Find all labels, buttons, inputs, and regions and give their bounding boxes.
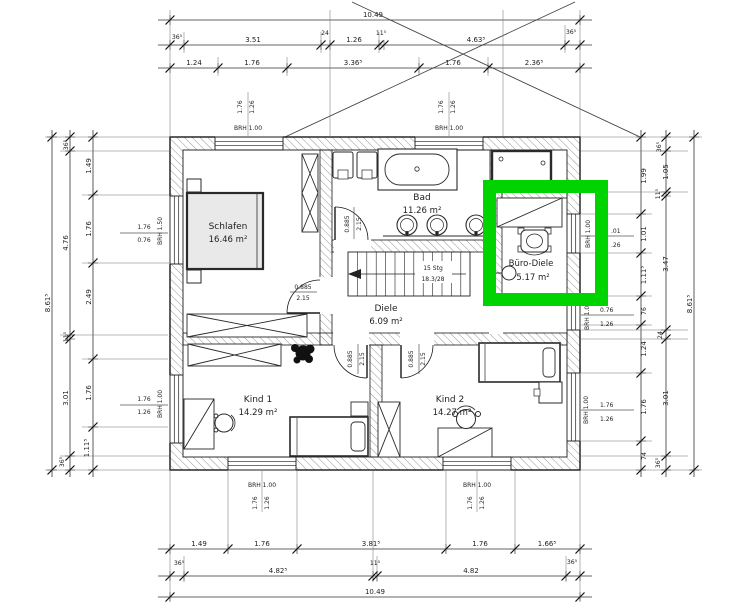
wardrobe [378,402,400,457]
roof-line [285,2,575,137]
label-rooms-0-area: 16.46 m² [209,235,248,245]
label-dims-bottom-chain2-3: 4.82 [463,567,479,575]
label-door-h: 2.15 [359,352,366,366]
label-dims-left-chain3-3: 1.76 [85,385,93,401]
label-windows-left2-w: 1.76 [137,396,151,403]
label-dims-top-chain3-1: 1.76 [244,59,260,67]
toilet [333,152,353,179]
label-dims-bottom-chain2-2: 11⁵ [370,560,381,567]
label-dims-left-chain3-1: 1.76 [85,221,93,237]
window [443,456,511,471]
label-windows-top1-brh: BRH 1.00 [234,125,262,132]
desk [438,428,492,457]
label-dims-right-total: 8.61⁵ [686,295,694,314]
kind1-furniture [184,344,368,456]
label-dims-right-chain2-4: 24 [657,331,664,339]
label-rooms-4-area: 14.29 m² [239,408,278,418]
label-windows-bottom2-h: 1.26 [479,496,486,510]
plant [291,344,315,364]
label-dims-top-chain2-5: 4.63⁵ [467,36,486,44]
nightstand [187,179,201,192]
door-bad [334,207,371,253]
label-dims-left-chain2-2: 11⁵ [63,331,70,342]
label-windows-top1-w: 1.76 [237,100,244,114]
window [215,136,283,151]
label-door-h: 2.15 [296,295,310,302]
label-rooms-5-area: 14.27 m² [433,408,472,418]
label-door-w: 0.885 [294,284,311,291]
label-dims-right-chain2-0: 36⁵ [656,141,663,152]
window [566,214,581,253]
label-windows-bottom2-brh: BRH 1.00 [463,482,491,489]
label-windows-right1-w: .01 [611,228,621,235]
label-dims-right-chain2-3: 3.47 [662,256,670,272]
bidet [357,152,377,179]
window [228,456,296,471]
door-kind2 [400,332,434,378]
label-dims-right-chain1-3: 76 [641,307,648,315]
label-dims-left-chain3-4: 1.11⁵ [83,439,91,458]
label-windows-bottom1-h: 1.26 [264,496,271,510]
label-dims-top-chain3-2: 3.36⁵ [344,59,363,67]
label-windows-right1-brh: BRH 1.00 [585,220,592,248]
label-dims-bottom-chain1-2: 3.81⁵ [362,540,381,548]
bed [479,343,560,382]
label-dims-left-total: 8.61⁵ [44,294,52,313]
label-rooms-2-name: Büro-Diele [509,259,554,269]
label-dims-top-chain3-3: 1.76 [445,59,461,67]
label-rooms-3-area: 6.09 m² [369,317,402,327]
label-windows-right3-w: 1.76 [600,402,614,409]
label-dims-right-chain1-0: 1.99 [640,168,648,184]
label-dims-left-chain3-2: 2.49 [85,289,93,305]
label-windows-bottom2-w: 1.76 [467,496,474,510]
chair [214,414,235,432]
label-dims-top-total: 10.49 [363,11,383,19]
washbasin [397,215,417,235]
label-windows-top2-w: 1.76 [438,100,445,114]
label-rooms-2-area: 5.17 m² [516,273,549,283]
label-rooms-1-name: Bad [413,193,430,203]
desk [184,399,214,449]
label-dims-bottom-chain1-3: 1.76 [472,540,488,548]
window [169,196,184,264]
label-dims-right-chain2-5: 3.01 [662,390,670,406]
label-windows-top2-brh: BRH 1.00 [435,125,463,132]
label-rooms-4-name: Kind 1 [244,395,272,405]
floor-plan-drawing: 10.4936⁵3.51241.2611⁵4.63⁵36⁵1.241.763.3… [0,0,731,614]
label-door-w: 0.885 [408,350,415,367]
nightstand [534,382,562,403]
label-windows-bottom1-w: 1.76 [252,496,259,510]
label-stairs-line2: 18.3/28 [421,276,444,283]
label-dims-right-chain2-6: 36⁵ [655,457,662,468]
roof-line [352,2,640,137]
schlafen-furniture [187,154,318,337]
label-door-h: 2.15 [420,352,427,366]
label-dims-top-chain2-2: 24 [321,30,329,37]
bathtub [378,149,457,190]
wardrobe [187,314,307,337]
label-dims-bottom-chain1-4: 1.66⁵ [538,540,557,548]
roof-projection-lines [285,2,640,137]
label-windows-right2-w: 0.76 [600,307,614,314]
nightstand [187,270,201,283]
label-dims-bottom-chain2-1: 4.82⁵ [269,567,288,575]
label-windows-left1-h: 0.76 [137,237,151,244]
label-dims-top-chain2-1: 3.51 [245,36,261,44]
label-rooms-0-name: Schlafen [209,222,248,232]
nightstand [351,402,368,416]
label-door-w: 0.885 [347,350,354,367]
label-dims-top-chain3-0: 1.24 [186,59,202,67]
label-dims-right-chain1-2: 1.11⁵ [640,266,648,285]
label-dims-top-chain2-3: 1.26 [346,36,362,44]
label-dims-right-chain1-6: 74 [641,452,648,460]
label-dims-bottom-chain2-0: 36⁵ [174,560,185,567]
office-chair [518,228,551,255]
label-door-h: 2.15 [356,217,363,231]
label-dims-top-chain3-4: 2.36⁵ [525,59,544,67]
desk-closet [497,198,562,227]
label-dims-bottom-chain2-4: 36⁵ [567,559,578,566]
shaft-cabinet [302,154,318,232]
label-dims-top-chain2-6: 36⁵ [566,29,577,36]
label-door-w: 0.885 [344,215,351,232]
label-windows-right3-brh: BRH 1.00 [583,396,590,424]
label-windows-bottom1-brh: BRH 1.00 [248,482,276,489]
label-windows-left1-brh: BRH 1.50 [157,217,164,245]
label-dims-right-chain1-1: 1.01 [640,226,648,242]
label-dims-left-chain2-4: 36⁵ [59,456,66,467]
stairs [348,252,470,296]
label-dims-bottom-chain1-1: 1.76 [254,540,270,548]
label-dims-left-chain2-0: 36⁵ [63,139,70,150]
wardrobe [188,344,281,366]
label-stairs-line1: 15 Stg [423,265,443,272]
window [566,373,581,441]
label-dims-top-chain2-0: 36⁵ [172,34,183,41]
door-schlafen [287,277,333,314]
label-windows-left2-brh: BRH 1.00 [157,390,164,418]
label-dims-bottom-chain1-0: 1.49 [191,540,207,548]
label-rooms-3-name: Diele [374,304,397,314]
window [169,375,184,443]
label-windows-top2-h: 1.26 [450,100,457,114]
bed [290,417,368,456]
wall-schlafen-bad [320,150,332,345]
kind2-furniture [378,343,562,457]
label-dims-top-chain2-4: 11⁵ [376,30,387,37]
label-dims-left-chain3-0: 1.49 [85,158,93,174]
label-windows-right2-h: 1.26 [600,321,614,328]
label-dims-left-chain2-3: 3.01 [62,390,70,406]
label-rooms-1-area: 11.26 m² [403,206,442,216]
label-dims-right-chain2-1: 1.05 [662,164,670,180]
label-windows-top1-h: 1.26 [249,100,256,114]
label-windows-left1-w: 1.76 [137,224,151,231]
label-dims-bottom-total: 10.49 [365,588,385,596]
label-windows-right2-brh: BRH 1.00 [584,302,591,330]
label-windows-right1-h: .26 [611,242,621,249]
label-dims-right-chain2-2: 11⁵ [655,188,662,199]
label-windows-left2-h: 1.26 [137,409,151,416]
label-dims-right-chain1-5: 1.76 [640,399,648,415]
washbasin [427,215,447,235]
label-windows-right3-h: 1.26 [600,416,614,423]
label-dims-left-chain2-1: 4.76 [62,235,70,251]
label-dims-right-chain1-4: 1.24 [640,341,648,357]
label-rooms-5-name: Kind 2 [436,395,464,405]
